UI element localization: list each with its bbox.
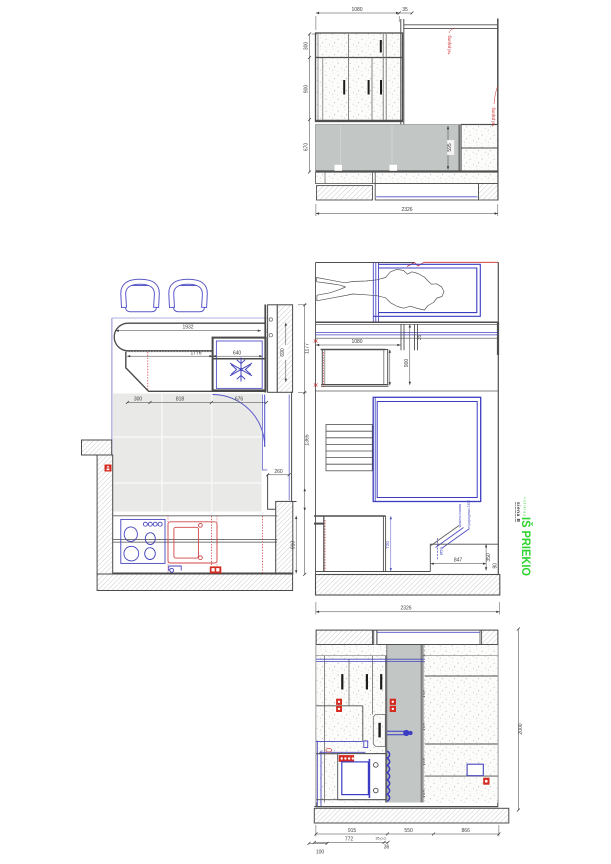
svg-text:2000: 2000 (518, 723, 524, 734)
svg-text:866: 866 (462, 828, 471, 834)
svg-text:90: 90 (493, 563, 499, 569)
svg-text:670: 670 (304, 143, 310, 152)
svg-text:35 p.d.: 35 p.d. (376, 837, 387, 841)
svg-text:1365: 1365 (304, 434, 310, 445)
svg-text:1932: 1932 (182, 325, 193, 331)
svg-text:1080: 1080 (351, 7, 362, 13)
svg-text:350: 350 (486, 553, 492, 562)
svg-text:900: 900 (304, 85, 310, 94)
svg-text:1080: 1080 (351, 339, 362, 345)
svg-text:900: 900 (404, 359, 410, 368)
svg-text:910: 910 (291, 541, 297, 550)
svg-text:915: 915 (348, 828, 357, 834)
svg-text:595: 595 (447, 143, 453, 152)
svg-text:550: 550 (404, 828, 413, 834)
svg-text:+el.pajung.: +el.pajung. (491, 106, 496, 127)
svg-text:300: 300 (134, 396, 143, 402)
svg-text:IŠ PRIEKIO: IŠ PRIEKIO (519, 517, 534, 576)
svg-text:35: 35 (402, 7, 408, 13)
svg-text:300: 300 (304, 42, 310, 51)
svg-text:2326: 2326 (401, 207, 412, 213)
svg-text:el.pajungimas 230V: el.pajungimas 230V (467, 499, 471, 528)
svg-text:690: 690 (280, 348, 286, 357)
svg-text:+el.pajung.: +el.pajung. (447, 34, 452, 55)
svg-text:Ø50: Ø50 (439, 547, 444, 555)
svg-text:640: 640 (233, 350, 242, 356)
svg-text:+stiklas: +stiklas (523, 497, 527, 516)
svg-text:676: 676 (235, 396, 244, 402)
svg-text:1776: 1776 (190, 350, 201, 356)
svg-text:100: 100 (316, 849, 325, 855)
svg-text:2326: 2326 (400, 606, 411, 612)
svg-text:260: 260 (274, 469, 283, 475)
svg-text:vandens isvadas: vandens isvadas (458, 503, 462, 527)
svg-text:36: 36 (384, 844, 390, 850)
svg-text:720: 720 (385, 541, 390, 549)
svg-text:818: 818 (176, 396, 185, 402)
svg-text:772: 772 (345, 837, 354, 843)
svg-text:847: 847 (454, 558, 463, 564)
svg-text:1177: 1177 (304, 343, 310, 354)
